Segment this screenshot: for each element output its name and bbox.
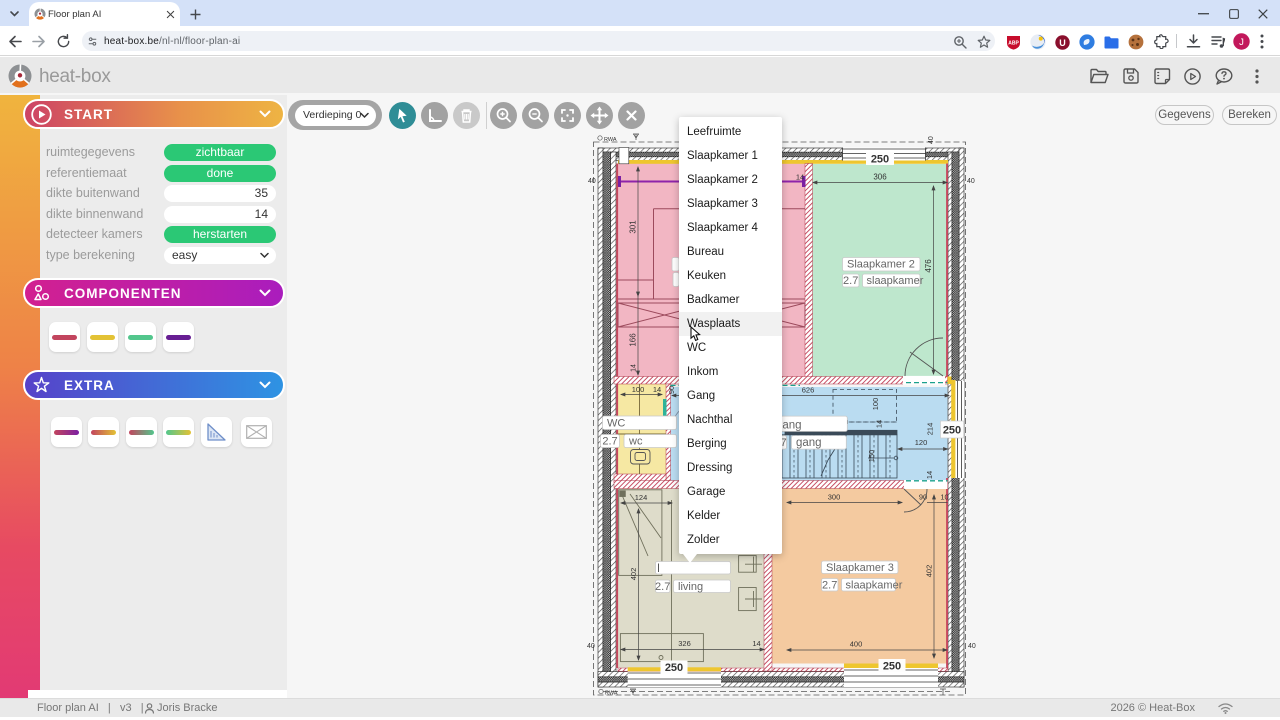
svg-text:2.7: 2.7 bbox=[655, 581, 670, 593]
svg-text:90: 90 bbox=[667, 386, 676, 394]
svg-text:slaapkamer: slaapkamer bbox=[846, 580, 903, 592]
svg-text:120: 120 bbox=[915, 438, 928, 447]
svg-text:100: 100 bbox=[871, 398, 880, 411]
svg-text:40: 40 bbox=[587, 643, 595, 650]
svg-text:14: 14 bbox=[631, 364, 638, 372]
svg-text:402: 402 bbox=[629, 568, 638, 581]
svg-text:166: 166 bbox=[629, 333, 638, 347]
svg-text:400: 400 bbox=[850, 640, 863, 649]
svg-text:306: 306 bbox=[873, 173, 887, 182]
svg-text:gang: gang bbox=[796, 437, 822, 449]
svg-text:40: 40 bbox=[967, 178, 975, 185]
svg-text:2.7: 2.7 bbox=[822, 580, 837, 592]
svg-text:326: 326 bbox=[678, 639, 691, 648]
svg-text:40: 40 bbox=[928, 136, 935, 144]
svg-text:250: 250 bbox=[665, 662, 683, 674]
svg-text:300: 300 bbox=[828, 493, 841, 502]
svg-text:RWA: RWA bbox=[605, 691, 618, 697]
svg-text:2.7: 2.7 bbox=[843, 275, 858, 287]
svg-text:40: 40 bbox=[968, 643, 976, 650]
svg-text:J: J bbox=[1239, 37, 1244, 48]
svg-text:626: 626 bbox=[802, 386, 815, 395]
svg-text:slaapkamer: slaapkamer bbox=[867, 275, 924, 287]
svg-text:250: 250 bbox=[871, 154, 889, 166]
svg-text:14: 14 bbox=[925, 471, 934, 479]
svg-text:14: 14 bbox=[875, 420, 884, 428]
svg-text:40: 40 bbox=[588, 178, 596, 185]
svg-text:14: 14 bbox=[752, 639, 760, 648]
svg-text:2.7: 2.7 bbox=[602, 436, 617, 448]
svg-text:150: 150 bbox=[867, 450, 876, 463]
svg-text:14: 14 bbox=[653, 385, 661, 394]
svg-text:wc: wc bbox=[628, 436, 643, 448]
svg-text:Slaapkamer 3: Slaapkamer 3 bbox=[826, 562, 894, 574]
svg-text:250: 250 bbox=[943, 425, 961, 437]
svg-text:301: 301 bbox=[629, 220, 638, 234]
svg-text:living: living bbox=[678, 581, 703, 593]
svg-text:10: 10 bbox=[940, 493, 948, 502]
svg-text:90: 90 bbox=[919, 493, 927, 502]
svg-text:214: 214 bbox=[926, 423, 935, 436]
svg-text:U: U bbox=[1059, 38, 1066, 48]
svg-text:100: 100 bbox=[632, 385, 645, 394]
svg-text:ABP: ABP bbox=[1008, 41, 1019, 47]
svg-text:124: 124 bbox=[635, 493, 648, 502]
svg-text:Slaapkamer 2: Slaapkamer 2 bbox=[847, 259, 915, 271]
svg-text:WC: WC bbox=[607, 418, 625, 430]
svg-text:14: 14 bbox=[796, 173, 804, 182]
svg-text:476: 476 bbox=[924, 259, 933, 273]
svg-text:402: 402 bbox=[925, 565, 934, 578]
svg-text:RWA: RWA bbox=[604, 137, 617, 143]
svg-text:250: 250 bbox=[883, 661, 901, 673]
